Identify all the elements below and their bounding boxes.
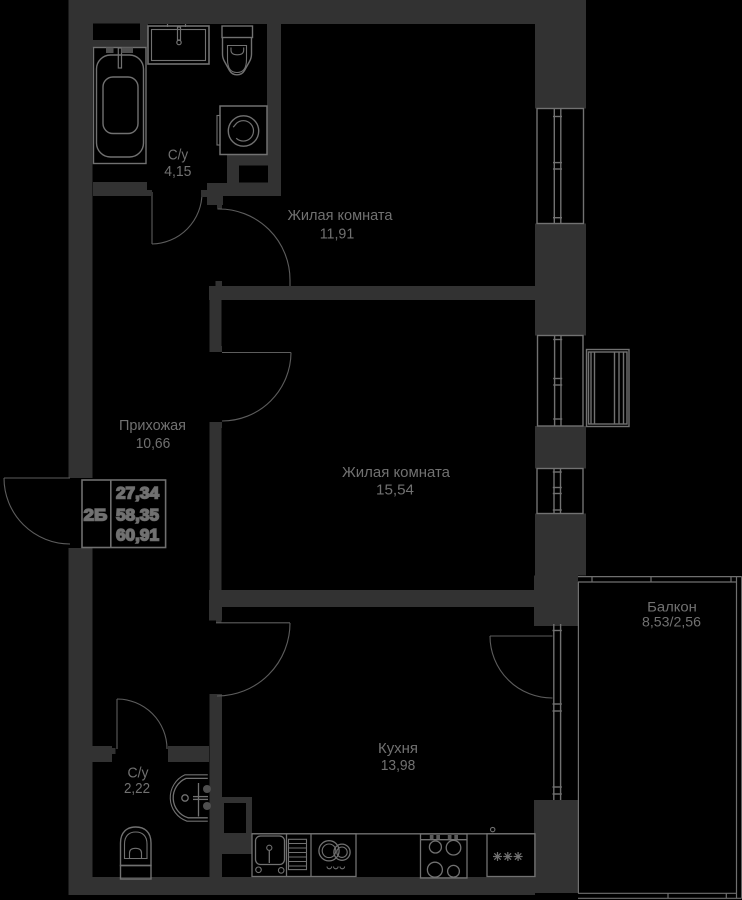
svg-text:11,91: 11,91 [320,226,355,243]
svg-text:15,54: 15,54 [376,482,414,499]
svg-text:4,15: 4,15 [164,163,191,180]
svg-text:Жилая комната: Жилая комната [288,207,394,224]
svg-text:10,66: 10,66 [136,435,171,452]
svg-text:8,53/2,56: 8,53/2,56 [642,615,701,630]
svg-text:С/у: С/у [168,147,189,164]
svg-text:13,98: 13,98 [381,757,416,774]
svg-text:Балкон: Балкон [647,600,697,615]
svg-text:С/у: С/у [128,765,149,782]
svg-text:Прихожая: Прихожая [119,417,186,434]
svg-text:27,34: 27,34 [116,483,160,502]
svg-text:2Б: 2Б [84,506,108,525]
svg-text:Жилая комната: Жилая комната [342,464,451,481]
svg-text:Кухня: Кухня [378,740,418,757]
svg-text:58,35: 58,35 [116,506,159,525]
svg-text:60,91: 60,91 [116,526,159,545]
svg-text:2,22: 2,22 [124,780,150,797]
